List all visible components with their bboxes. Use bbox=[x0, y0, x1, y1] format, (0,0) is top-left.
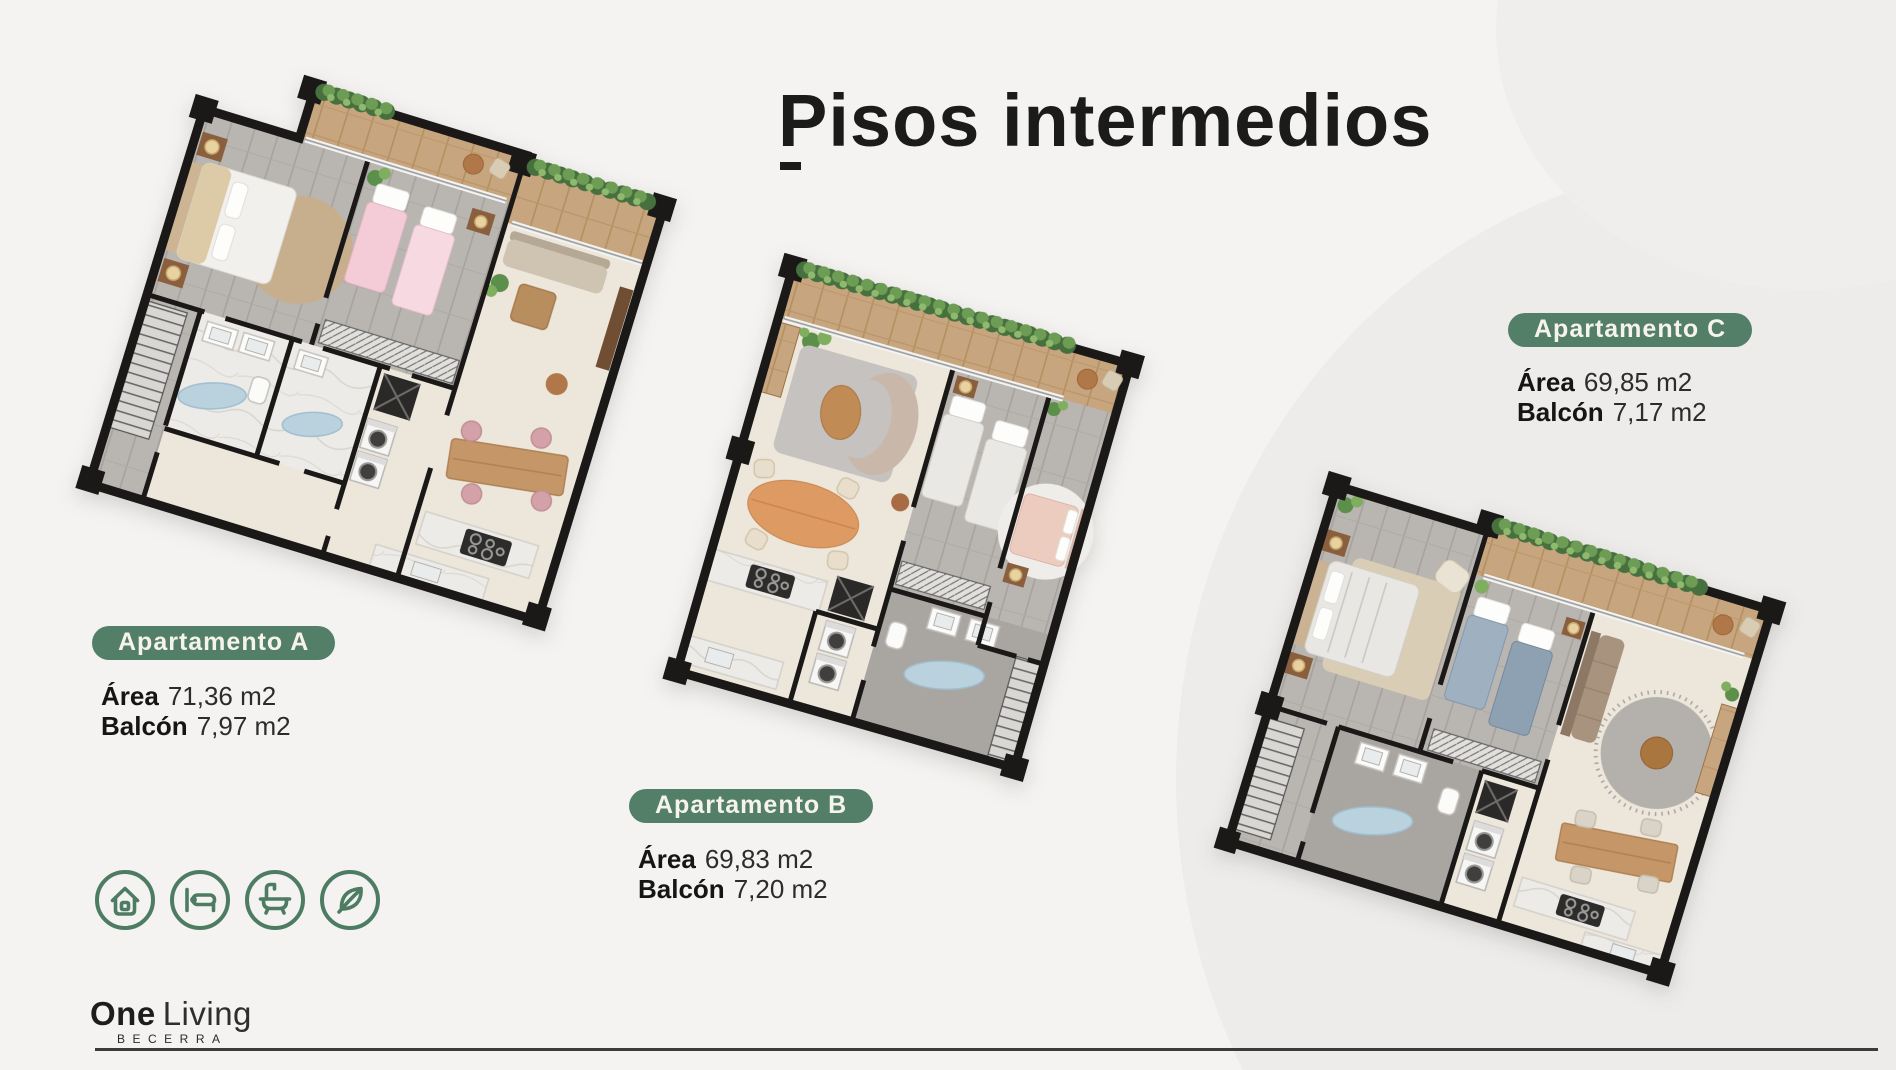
area-value: 69,83 m2 bbox=[705, 844, 813, 874]
area-label: Área bbox=[101, 681, 159, 711]
balcony-label: Balcón bbox=[638, 874, 725, 904]
floor-plan-apartment-a bbox=[69, 39, 681, 633]
title-underline bbox=[780, 162, 801, 170]
area-label: Área bbox=[1517, 367, 1575, 397]
amenity-icons bbox=[93, 868, 382, 932]
apartment-c-badge: Apartamento C bbox=[1508, 313, 1752, 347]
floor-plan-apartment-b bbox=[657, 245, 1153, 783]
logo-name: OneLiving bbox=[90, 997, 252, 1031]
area-label: Área bbox=[638, 844, 696, 874]
area-spec: Área69,83 m2 bbox=[638, 844, 828, 874]
balcony-value: 7,97 m2 bbox=[197, 711, 291, 741]
brochure-page: Pisos intermedios bbox=[0, 0, 1896, 1070]
bed-icon bbox=[168, 868, 232, 932]
apartment-c-specs: Área69,85 m2 Balcón7,17 m2 bbox=[1517, 367, 1707, 427]
balcony-label: Balcón bbox=[101, 711, 188, 741]
logo: OneLiving BECERRA bbox=[90, 997, 252, 1046]
page-title: Pisos intermedios bbox=[778, 84, 1432, 158]
house-icon bbox=[93, 868, 157, 932]
apartment-a-badge: Apartamento A bbox=[92, 626, 335, 660]
bathtub-icon bbox=[243, 868, 307, 932]
footer-divider bbox=[95, 1048, 1878, 1051]
apartment-b-specs: Área69,83 m2 Balcón7,20 m2 bbox=[638, 844, 828, 904]
apartment-a-specs: Área71,36 m2 Balcón7,97 m2 bbox=[101, 681, 291, 741]
balcony-spec: Balcón7,20 m2 bbox=[638, 874, 828, 904]
area-value: 69,85 m2 bbox=[1584, 367, 1692, 397]
area-value: 71,36 m2 bbox=[168, 681, 276, 711]
balcony-label: Balcón bbox=[1517, 397, 1604, 427]
balcony-spec: Balcón7,17 m2 bbox=[1517, 397, 1707, 427]
balcony-value: 7,17 m2 bbox=[1613, 397, 1707, 427]
area-spec: Área71,36 m2 bbox=[101, 681, 291, 711]
area-spec: Área69,85 m2 bbox=[1517, 367, 1707, 397]
apartment-b-badge: Apartamento B bbox=[629, 789, 873, 823]
logo-word-living: Living bbox=[163, 995, 252, 1032]
logo-word-one: One bbox=[90, 995, 156, 1032]
leaf-icon bbox=[318, 868, 382, 932]
logo-subtitle: BECERRA bbox=[117, 1032, 252, 1046]
balcony-value: 7,20 m2 bbox=[734, 874, 828, 904]
balcony-spec: Balcón7,97 m2 bbox=[101, 711, 291, 741]
